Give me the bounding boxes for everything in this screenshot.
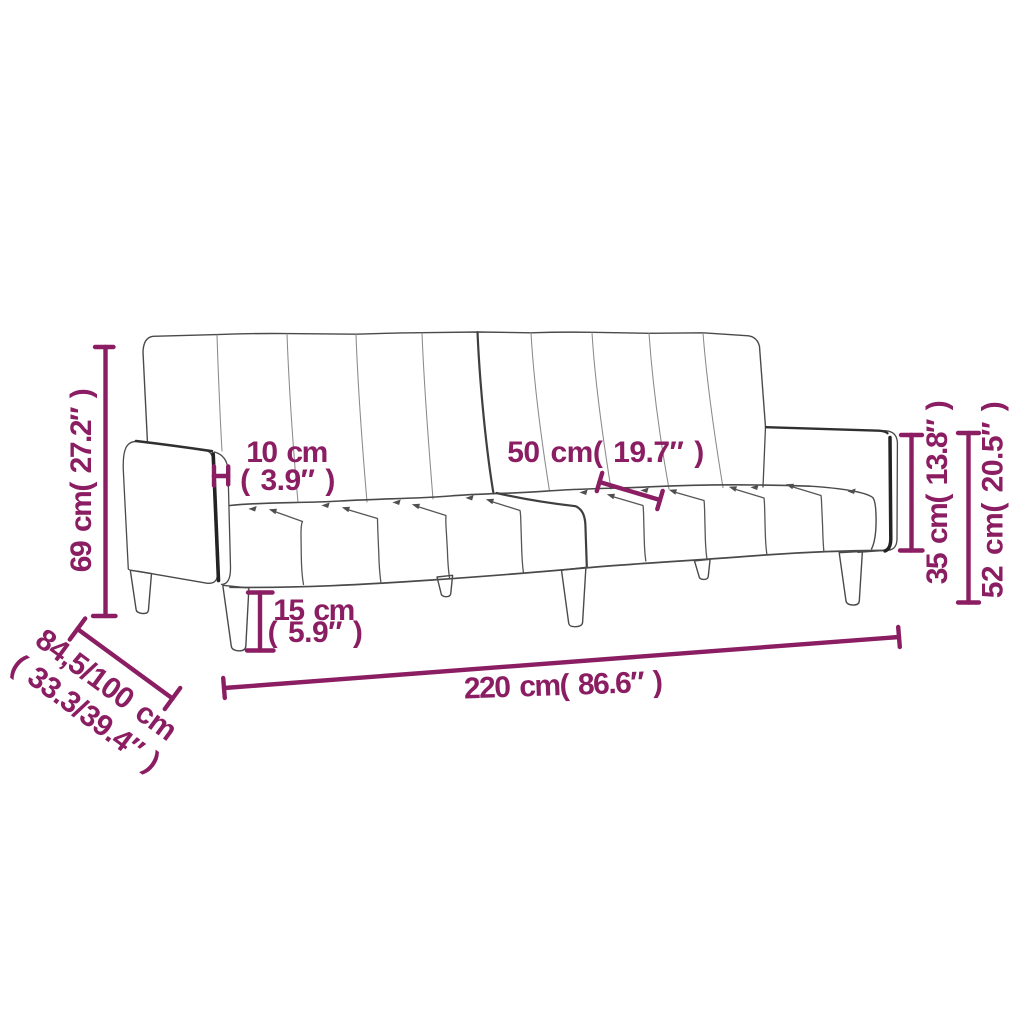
svg-text:220 cm( 86.6″ ): 220 cm( 86.6″ ): [463, 666, 662, 706]
svg-text:52 cm( 20.5″ ): 52 cm( 20.5″ ): [977, 402, 1010, 598]
svg-text:69 cm( 27.2″ ): 69 cm( 27.2″ ): [65, 389, 98, 572]
svg-text:( 3.9″ ): ( 3.9″ ): [240, 464, 335, 497]
svg-text:35 cm( 13.8″ ): 35 cm( 13.8″ ): [921, 401, 954, 584]
svg-text:( 5.9″ ): ( 5.9″ ): [268, 616, 363, 649]
svg-text:50 cm( 19.7″ ): 50 cm( 19.7″ ): [507, 436, 703, 469]
